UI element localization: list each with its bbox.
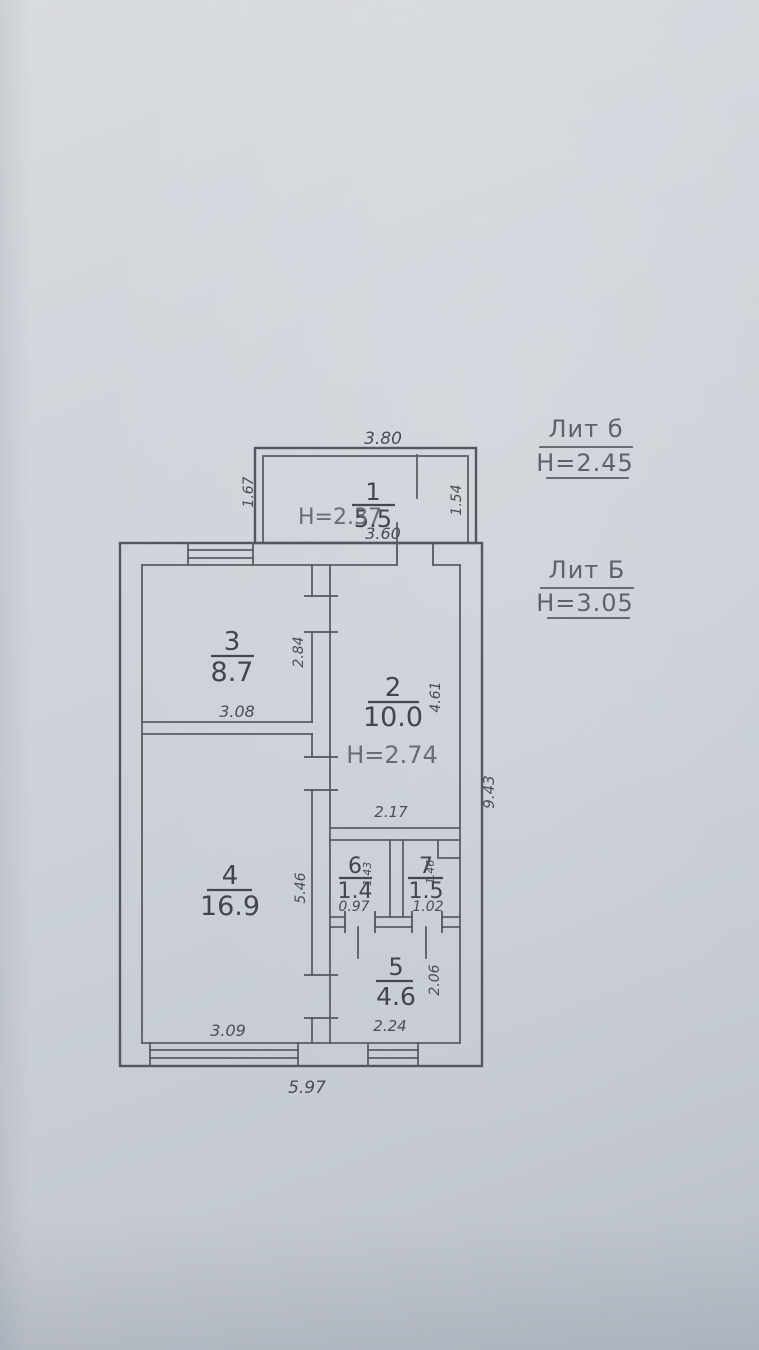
room4-number: 4 [222,861,239,891]
dim-overall-bottom: 5.97 [288,1078,326,1098]
floor-plan-photo: 1 5.5 H=2.37 2 10.0 H=2.74 3 8.7 4 16.9 … [0,0,759,1350]
floor-plan-drawing: 1 5.5 H=2.37 2 10.0 H=2.74 3 8.7 4 16.9 … [0,0,759,1350]
room2-number: 2 [385,673,402,703]
legend-lower-label: Лит Б [549,556,626,584]
dim-room4-bottom: 3.09 [210,1021,246,1040]
dim-room7-right: 1.46 [424,860,437,885]
dim-room1-left: 1.67 [241,476,257,507]
room2-area: 10.0 [363,702,423,733]
dim-room2-bottom: 2.17 [374,803,408,821]
dim-room1-right: 1.54 [449,484,465,515]
room6-number: 6 [348,854,362,879]
legend-upper-label: Лит б [548,415,623,443]
dim-room3-bottom: 3.08 [219,702,255,721]
room3-number: 3 [224,627,241,657]
window-bottom-right [368,1043,418,1066]
room5-number: 5 [388,953,403,981]
legend-upper: Лит б H=2.45 [536,415,634,478]
dim-room1-top: 3.80 [364,429,402,449]
central-partition-wall [304,565,338,1043]
wall-room2-bottom [330,828,460,840]
dim-room7-bottom: 1.02 [412,899,443,915]
room2-label: 2 10.0 H=2.74 [346,673,438,769]
room2-height-note: H=2.74 [346,741,438,769]
legend-upper-height: H=2.45 [536,449,634,477]
room1-number: 1 [365,478,380,506]
dim-room5-bottom: 2.24 [373,1017,406,1035]
dim-room5-right: 2.06 [427,964,443,995]
room5-area: 4.6 [376,982,416,1011]
room5-label: 5 4.6 [376,953,416,1011]
wall-room67-room5 [330,911,460,958]
window-top [188,543,253,565]
legend-lower-height: H=3.05 [536,589,634,617]
dim-room6-bottom: 0.97 [338,899,369,915]
wall-room3-room4 [142,722,312,734]
wall-room6-room7 [390,840,403,917]
dim-room1-bottom: 3.60 [365,524,401,543]
dim-room3-right: 2.84 [291,636,307,667]
duct-room7 [438,840,460,858]
legend-lower: Лит Б H=3.05 [536,556,634,618]
dim-room6-right: 1.43 [361,862,374,887]
dim-overall-right: 9.43 [480,775,498,808]
dim-room4-right: 5.46 [293,872,309,903]
room4-label: 4 16.9 [200,861,260,922]
dim-room2-right: 4.61 [428,681,444,712]
window-bottom-left [150,1043,298,1066]
room3-label: 3 8.7 [211,627,254,688]
room4-area: 16.9 [200,891,260,922]
room3-area: 8.7 [211,657,254,688]
